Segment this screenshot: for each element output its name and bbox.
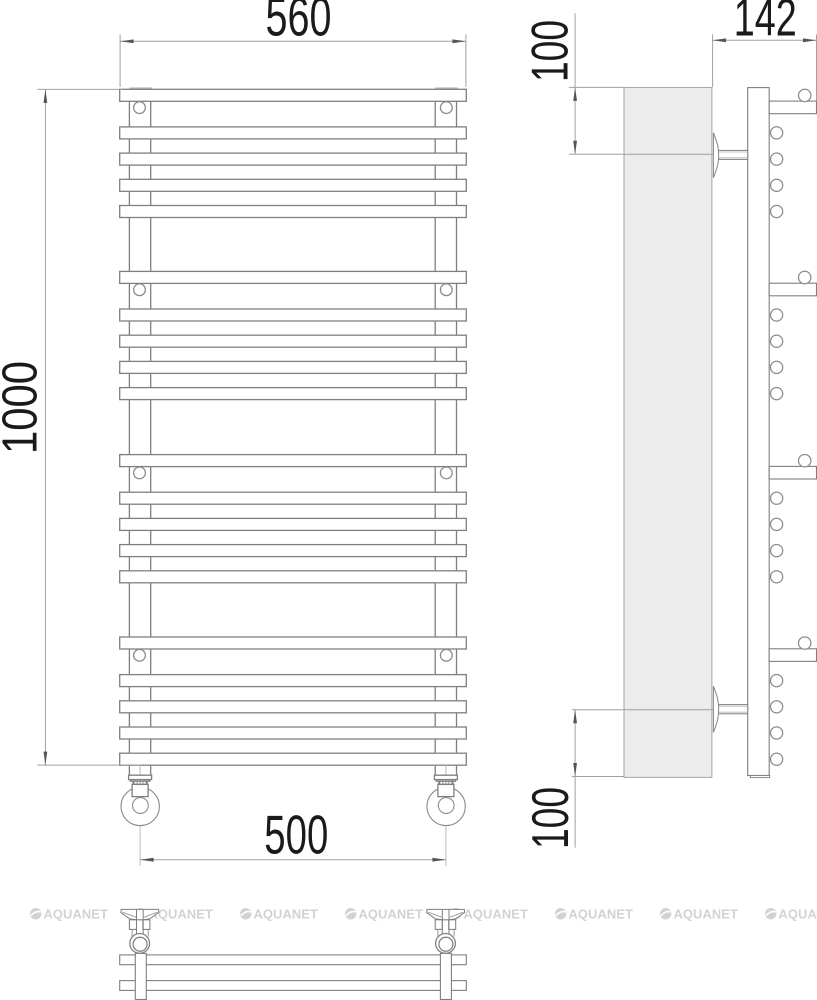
svg-text:AQUANET: AQUANET: [359, 906, 423, 921]
svg-text:142: 142: [734, 0, 797, 47]
svg-text:AQUANET: AQUANET: [44, 906, 108, 921]
svg-text:100: 100: [522, 787, 580, 849]
svg-text:560: 560: [266, 0, 332, 48]
svg-text:AQUANET: AQUANET: [149, 906, 213, 921]
svg-text:500: 500: [264, 804, 328, 866]
svg-text:AQUANET: AQUANET: [779, 906, 817, 921]
svg-text:AQUANET: AQUANET: [464, 906, 528, 921]
svg-text:AQUANET: AQUANET: [674, 906, 738, 921]
svg-text:1000: 1000: [0, 361, 48, 454]
svg-text:100: 100: [521, 20, 579, 82]
svg-text:AQUANET: AQUANET: [254, 906, 318, 921]
svg-text:AQUANET: AQUANET: [569, 906, 633, 921]
